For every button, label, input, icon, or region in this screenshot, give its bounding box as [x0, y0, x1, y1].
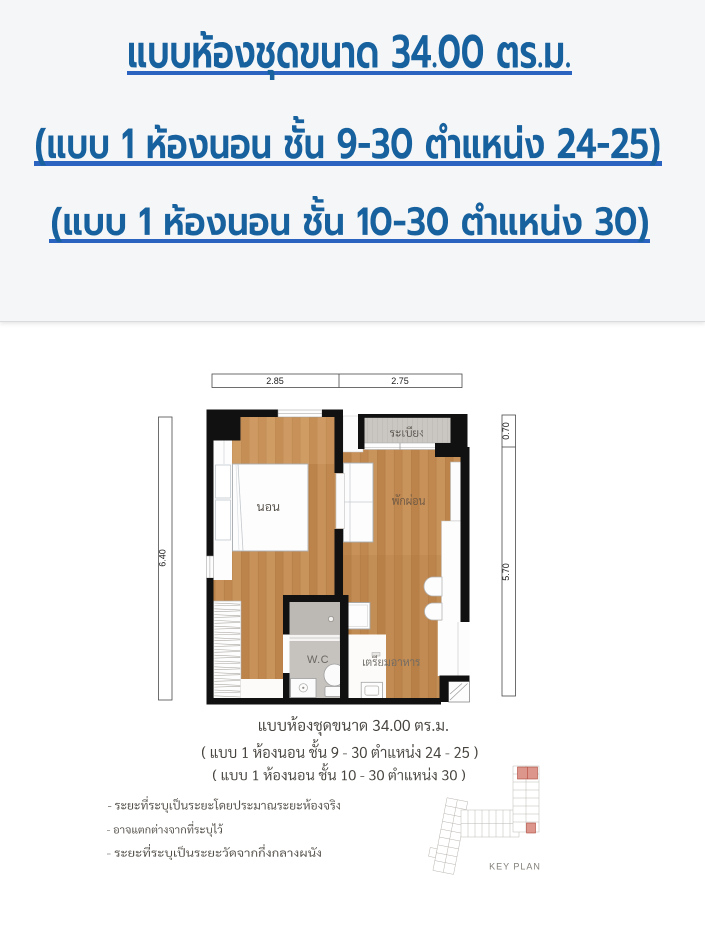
svg-text:2.85: 2.85	[266, 376, 284, 386]
svg-text:5.70: 5.70	[501, 563, 511, 581]
svg-text:6.40: 6.40	[158, 549, 168, 567]
svg-text:0.70: 0.70	[501, 422, 511, 440]
svg-text:KEY PLAN: KEY PLAN	[489, 862, 541, 872]
svg-text:2.75: 2.75	[391, 376, 409, 386]
